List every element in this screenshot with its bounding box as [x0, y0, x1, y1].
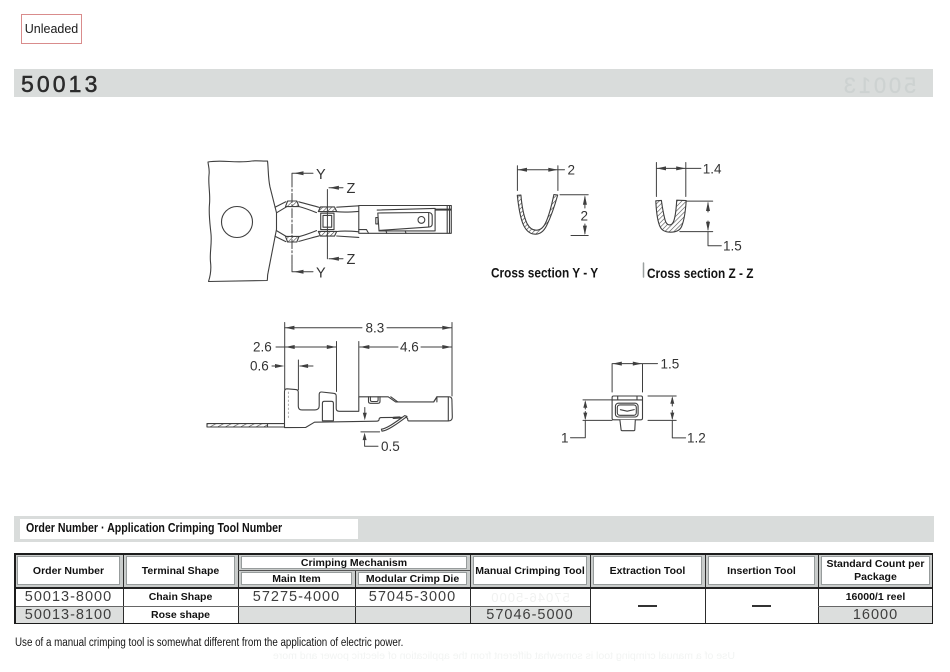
svg-text:Z: Z	[347, 181, 356, 197]
svg-text:Y: Y	[316, 266, 326, 282]
svg-text:1.2: 1.2	[687, 430, 706, 445]
svg-text:1.5: 1.5	[723, 239, 742, 254]
svg-text:1.5: 1.5	[661, 356, 680, 371]
svg-text:8.3: 8.3	[366, 320, 385, 335]
svg-text:Cross section Y - Y: Cross section Y - Y	[491, 265, 598, 281]
svg-text:Y: Y	[316, 167, 326, 183]
svg-text:2.6: 2.6	[253, 340, 272, 355]
svg-text:4.6: 4.6	[400, 340, 419, 355]
svg-text:Cross section Z - Z: Cross section Z - Z	[647, 265, 754, 281]
svg-text:1: 1	[561, 430, 569, 445]
svg-text:Z: Z	[347, 252, 356, 268]
svg-text:0.5: 0.5	[381, 439, 400, 454]
svg-text:2: 2	[568, 163, 576, 178]
svg-text:2: 2	[581, 209, 589, 224]
svg-text:1.4: 1.4	[703, 161, 722, 176]
svg-text:0.6: 0.6	[250, 359, 269, 374]
